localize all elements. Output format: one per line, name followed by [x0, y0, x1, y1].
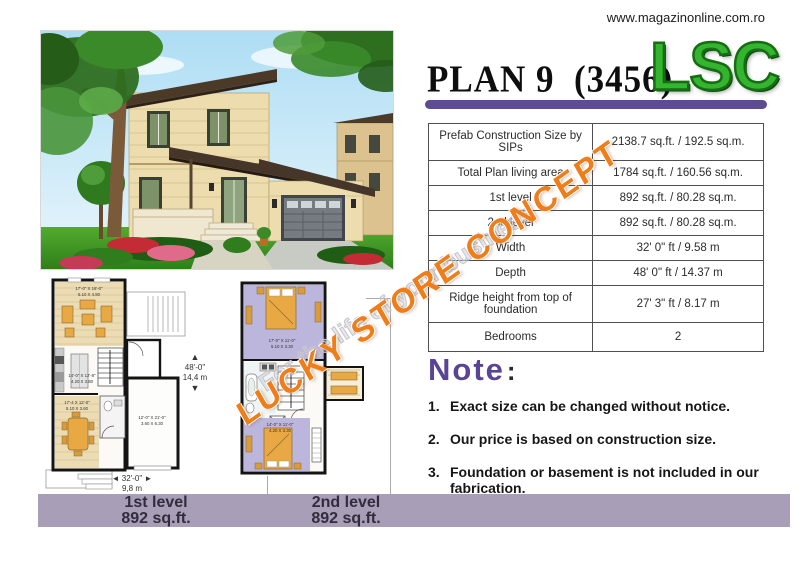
- label-kitchen-ft: 14'-0" X 12'-8": [68, 373, 96, 378]
- width-dimension: ◄ 32'-0" ► 9,8 m: [92, 474, 172, 493]
- second-level-title: 2nd level: [276, 495, 416, 511]
- depth-dimension: ▲ 48'-0" 14,4 m ▼: [179, 352, 211, 395]
- up-arrow-icon: ▲: [179, 352, 211, 363]
- note-item-number: 3.: [428, 464, 450, 496]
- label-bed1-ft: 17'-0" X 11'-0": [269, 338, 296, 343]
- spec-label: Prefab Construction Size by SIPs: [429, 124, 593, 161]
- note-item-number: 2.: [428, 431, 450, 447]
- second-level-caption: 2nd level 892 sq.ft.: [276, 495, 416, 527]
- title-underline: [425, 100, 767, 109]
- plan-title: PLAN 9 (3456): [427, 58, 673, 101]
- second-level-area: 892 sq.ft.: [276, 511, 416, 527]
- flyer-page: www.magazinonline.com.ro: [0, 0, 800, 566]
- spec-row: Ridge height from top of foundation27' 3…: [429, 286, 764, 323]
- down-arrow-icon: ▼: [179, 383, 211, 394]
- note-item: 1.Exact size can be changed without noti…: [428, 398, 778, 414]
- depth-meters: 14,4 m: [179, 373, 211, 383]
- label-living-m: 5.10 X 4.80: [78, 292, 101, 297]
- label-bed1-m: 5.10 X 3.30: [271, 344, 294, 349]
- note-item-text: Exact size can be changed without notice…: [450, 398, 730, 414]
- lsc-logo: LSC: [650, 27, 779, 105]
- website-url: www.magazinonline.com.ro: [600, 10, 765, 25]
- spec-value: 892 sq.ft. / 80.28 sq.m.: [593, 211, 764, 236]
- spec-value: 892 sq.ft. / 80.28 sq.m.: [593, 186, 764, 211]
- note-heading-colon: :: [507, 356, 518, 386]
- width-meters: 9,8 m: [92, 484, 172, 494]
- spec-value: 27' 3" ft / 8.17 m: [593, 286, 764, 323]
- note-item: 2.Our price is based on construction siz…: [428, 431, 778, 447]
- spec-row: Bedrooms2: [429, 323, 764, 352]
- spec-value: 48' 0" ft / 14.37 m: [593, 261, 764, 286]
- width-feet: 32'-0": [122, 474, 142, 483]
- first-level-title: 1st level: [86, 495, 226, 511]
- right-arrow-icon: ►: [144, 474, 152, 483]
- spec-value: 2: [593, 323, 764, 352]
- house-rendering: [40, 30, 394, 270]
- spec-label: Bedrooms: [429, 323, 593, 352]
- note-item-number: 1.: [428, 398, 450, 414]
- label-dining-ft: 17'-4 X 12'-0": [64, 400, 90, 405]
- note-list: 1.Exact size can be changed without noti…: [428, 398, 778, 496]
- width-feet-row: ◄ 32'-0" ►: [92, 474, 172, 484]
- note-item-text: Foundation or basement is not included i…: [450, 464, 778, 496]
- label-bed2-ft: 14'-0" X 11'-0": [267, 422, 294, 427]
- note-item-text: Our price is based on construction size.: [450, 431, 716, 447]
- note-section: Note: 1.Exact size can be changed withou…: [428, 352, 778, 513]
- garage-door: [281, 195, 345, 241]
- note-heading: Note:: [428, 352, 778, 388]
- spec-label: Ridge height from top of foundation: [429, 286, 593, 323]
- label-garage-m: 3.60 X 6.30: [141, 421, 164, 426]
- spec-value: 32' 0" ft / 9.58 m: [593, 236, 764, 261]
- spec-row: 1st level892 sq.ft. / 80.28 sq.m.: [429, 186, 764, 211]
- label-bed2-m: 4.20 X 3.30: [269, 428, 292, 433]
- note-item: 3.Foundation or basement is not included…: [428, 464, 778, 496]
- left-arrow-icon: ◄: [112, 474, 120, 483]
- first-level-area: 892 sq.ft.: [86, 511, 226, 527]
- depth-feet: 48'-0": [179, 363, 211, 373]
- first-level-caption: 1st level 892 sq.ft.: [86, 495, 226, 527]
- footer-bar: 1st level 892 sq.ft. 2nd level 892 sq.ft…: [38, 494, 790, 527]
- label-kitchen-m: 4.20 X 3.80: [71, 379, 94, 384]
- note-heading-word: Note: [428, 352, 505, 387]
- label-garage-ft: 12'-0" X 21'-0": [138, 415, 166, 420]
- label-dining-m: 5.10 X 3.60: [66, 406, 89, 411]
- house-rendering-illustration: [41, 31, 393, 269]
- label-living-ft: 17'-0" X 16'-0": [75, 286, 103, 291]
